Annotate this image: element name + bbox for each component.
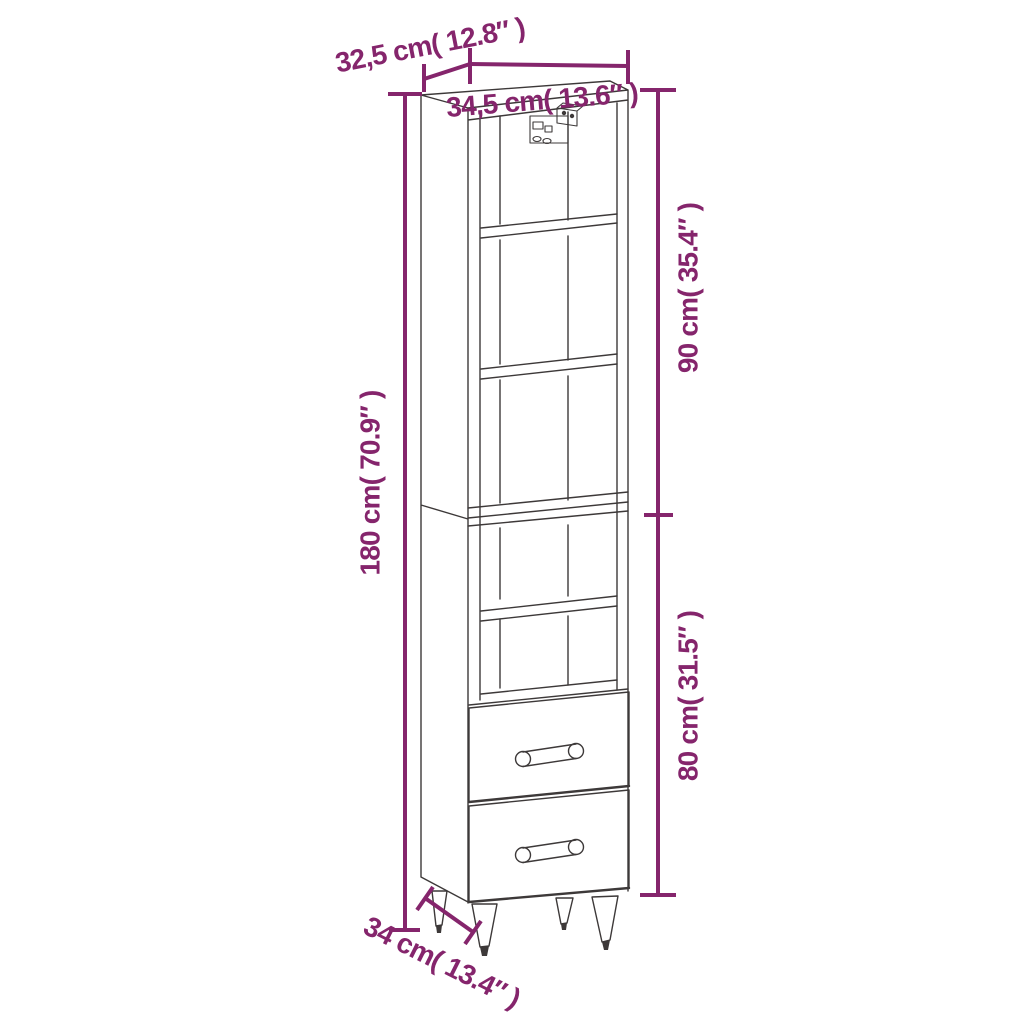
label-top-depth: 32,5 cm( 12.8″ ) [333, 11, 527, 78]
label-right-lower-height: 80 cm( 31.5″ ) [673, 611, 704, 781]
cabinet-outline [421, 81, 628, 903]
drawer-handle-bottom [516, 840, 584, 863]
dimension-lines [388, 48, 676, 944]
dimension-line-right-heights [640, 90, 676, 895]
dimension-line-bottom-depth [417, 887, 481, 944]
drawer-handle-top [516, 744, 584, 767]
cabinet-dimension-diagram: 32,5 cm( 12.8″ ) 34,5 cm( 13.6″ ) 90 cm(… [0, 0, 1024, 1024]
dimension-line-total-height [388, 94, 422, 930]
shelves [469, 214, 628, 705]
product-dimension-image: 32,5 cm( 12.8″ ) 34,5 cm( 13.6″ ) 90 cm(… [0, 0, 1024, 1024]
cabinet-drawing [421, 81, 629, 956]
drawer-bottom [469, 790, 629, 902]
module-joint [468, 492, 628, 526]
drawer-divider [469, 786, 629, 802]
compartment-back-lines [500, 112, 568, 688]
cabinet-bottom-edge [469, 888, 629, 902]
leg-feet [436, 923, 610, 956]
drawer-top [469, 692, 629, 802]
label-right-upper-height: 90 cm( 35.4″ ) [673, 203, 704, 373]
label-total-height: 180 cm( 70.9″ ) [355, 390, 386, 575]
